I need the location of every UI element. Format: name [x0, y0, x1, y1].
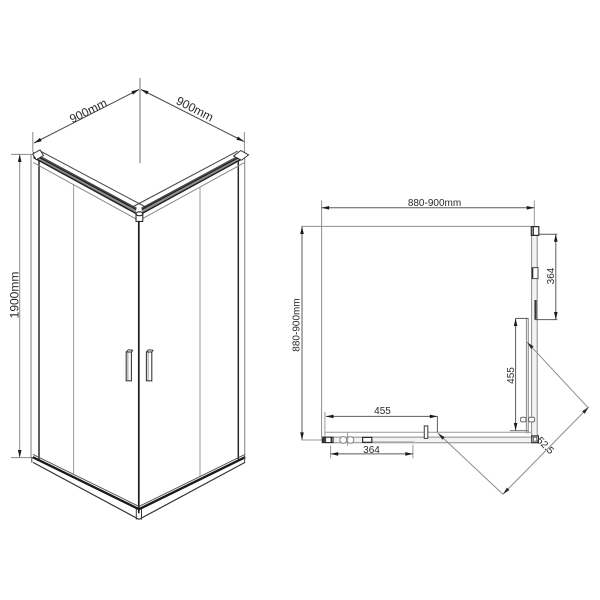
svg-text:880-900mm: 880-900mm [292, 298, 303, 351]
svg-text:455: 455 [374, 406, 391, 417]
svg-text:1900mm: 1900mm [8, 272, 22, 319]
svg-text:364: 364 [546, 267, 557, 284]
svg-text:880-900mm: 880-900mm [408, 198, 461, 209]
svg-text:364: 364 [363, 445, 380, 456]
svg-text:455: 455 [506, 367, 517, 384]
